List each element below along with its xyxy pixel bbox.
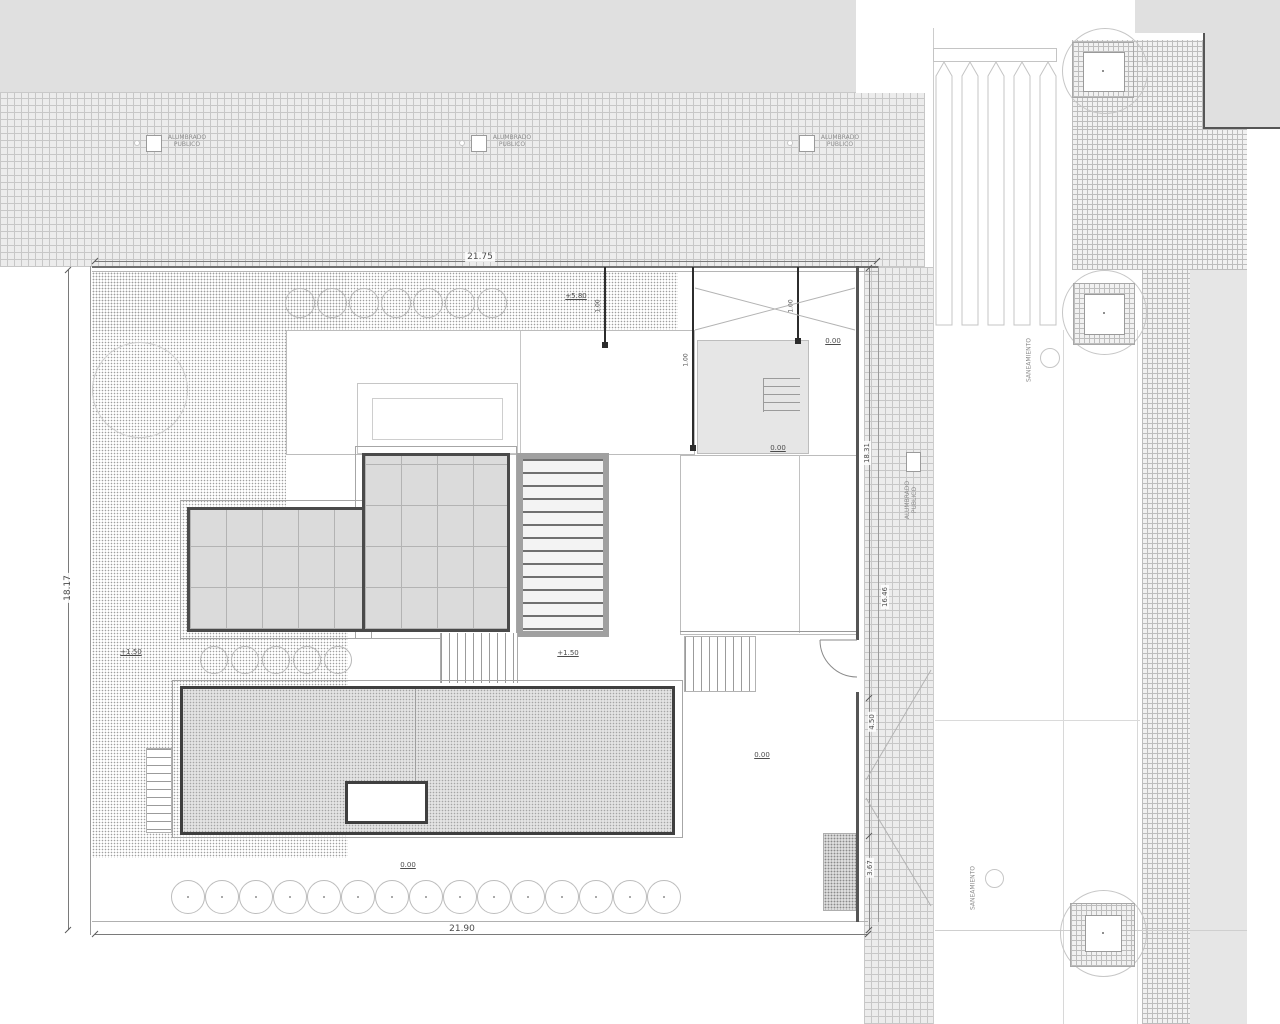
bush-circle xyxy=(231,646,259,674)
street-tree xyxy=(273,880,307,914)
level-patio-right-a: 0.00 xyxy=(825,337,841,345)
level-entry-court: 0.00 xyxy=(754,751,770,759)
dim-label-top: 21.75 xyxy=(465,252,495,262)
manhole-icon xyxy=(1040,348,1060,368)
lamp-label: ALUMBRADO PUBLICO xyxy=(817,135,863,149)
sidewalk-right xyxy=(864,267,933,1024)
street-edge-line xyxy=(933,28,934,1024)
level-patio-right-b: 0.00 xyxy=(770,444,786,452)
site-boundary-top-inner xyxy=(92,271,878,272)
lamp-box-icon xyxy=(471,135,487,152)
street-tree xyxy=(375,880,409,914)
tree-trunk-dot xyxy=(1103,312,1105,314)
site-boundary-top xyxy=(92,266,878,268)
sidewalk-top xyxy=(0,93,925,267)
right-patio-base-line xyxy=(680,631,857,632)
crosswalk-arrow-icon xyxy=(936,62,952,325)
manhole-icon xyxy=(985,869,1004,888)
bush-circle xyxy=(477,288,507,318)
lamp-label: ALUMBRADO PUBLICO xyxy=(164,135,210,149)
bush-circle xyxy=(262,646,290,674)
street-tree xyxy=(579,880,613,914)
building-block-top-right xyxy=(1203,33,1280,129)
site-wall-right xyxy=(856,266,859,640)
right-patio-divider xyxy=(799,455,800,633)
right-patio-block xyxy=(680,455,857,635)
dim-line-bottom xyxy=(95,934,868,935)
lamp-box-icon xyxy=(906,452,921,472)
street-joint-line xyxy=(935,720,1140,721)
lamp-label-vertical: ALUMBRADO PUBLICO xyxy=(905,477,919,523)
terrace-divider-line xyxy=(520,331,521,454)
street-tree xyxy=(409,880,443,914)
stair-mid-right xyxy=(684,636,756,692)
planter-pit xyxy=(1084,294,1125,335)
lamp-symbol-icon xyxy=(787,140,793,146)
lamp-box-icon xyxy=(146,135,162,152)
bush-circle xyxy=(381,288,411,318)
dim-label-right-upper: 18.31 xyxy=(863,441,871,465)
dim-label-left: 18.17 xyxy=(63,573,73,603)
stair-upper-right xyxy=(763,378,800,412)
site-plan-canvas: ALUMBRADO PUBLICO ALUMBRADO PUBLICO ALUM… xyxy=(0,0,1280,1024)
street-tree xyxy=(511,880,545,914)
level-terrace-left: +1.50 xyxy=(120,648,141,656)
terrace-step-outline xyxy=(372,398,503,440)
street-tree xyxy=(613,880,647,914)
crosswalk-arrow-icon xyxy=(988,62,1004,325)
dim-line-vertical xyxy=(604,267,606,345)
road-band-right xyxy=(1190,270,1247,1024)
bush-circle xyxy=(200,646,228,674)
level-roof: +5.80 xyxy=(565,292,586,300)
plaza-paving-band xyxy=(1142,270,1190,1024)
bush-circle xyxy=(413,288,443,318)
skylight-glass-right xyxy=(362,453,510,632)
street-tree xyxy=(205,880,239,914)
crosswalk-arrow-icon xyxy=(962,62,978,325)
bush-circle xyxy=(293,646,321,674)
tree-trunk-dot xyxy=(1102,70,1104,72)
pergola-louvers xyxy=(517,453,609,637)
dim-line-right xyxy=(869,268,870,930)
level-front-walk: 0.00 xyxy=(400,861,416,869)
street-tree xyxy=(545,880,579,914)
lamp-symbol-icon xyxy=(134,140,140,146)
crosswalk-arrows xyxy=(936,62,1056,325)
dim-label-right-bottom: 3.67 xyxy=(866,858,874,878)
dim-label-right-mid: 16.46 xyxy=(881,585,889,609)
plaza-paving-mid xyxy=(1072,127,1247,270)
lamp-box-icon xyxy=(799,135,815,152)
site-boundary-bottom xyxy=(92,921,868,922)
lamp-label: ALUMBRADO PUBLICO xyxy=(489,135,535,149)
dim-label-bottom: 21.90 xyxy=(447,924,477,934)
street-tree xyxy=(341,880,375,914)
stair-garden-left xyxy=(146,748,172,833)
dim-offset-label: 1.00 xyxy=(595,299,602,312)
crosswalk-arrow-icon xyxy=(1040,62,1056,325)
street-tree xyxy=(307,880,341,914)
bush-circle xyxy=(317,288,347,318)
lamp-symbol-icon xyxy=(459,140,465,146)
crosswalk-stop-bar xyxy=(933,48,1057,62)
skylight-glass-left xyxy=(187,507,365,632)
dim-offset-label: 1.00 xyxy=(683,353,690,366)
bush-circle xyxy=(445,288,475,318)
tree-trunk-dot xyxy=(1102,932,1104,934)
street-tree xyxy=(477,880,511,914)
street-tree xyxy=(239,880,273,914)
site-boundary-left xyxy=(90,266,91,935)
dim-line-vertical xyxy=(692,267,694,448)
bush-circle xyxy=(324,646,352,674)
site-wall-right xyxy=(856,692,859,922)
road-top xyxy=(0,0,856,93)
planter-pit xyxy=(1083,52,1125,92)
bush-circle xyxy=(349,288,379,318)
road-strip-top-right xyxy=(1135,0,1280,33)
dim-offset-label: 1.00 xyxy=(788,299,795,312)
street-tree xyxy=(443,880,477,914)
crosswalk-arrow-icon xyxy=(1014,62,1030,325)
stair-center xyxy=(440,633,518,683)
manhole-label: SANEAMIENTO xyxy=(970,866,977,910)
dim-label-right-lower: 4.50 xyxy=(868,712,876,732)
lower-roof-divider xyxy=(415,689,416,782)
street-tree xyxy=(647,880,681,914)
tree-canopy-circle-large xyxy=(92,342,188,438)
street-tree xyxy=(171,880,205,914)
site-wall-right-outer xyxy=(878,266,879,922)
bush-circle xyxy=(285,288,315,318)
dim-line-vertical xyxy=(797,267,799,341)
planter-site-corner xyxy=(823,833,857,911)
dim-line-tick xyxy=(795,338,801,344)
lower-roof-opening xyxy=(345,781,428,824)
manhole-label: SANEAMIENTO xyxy=(1026,338,1033,382)
dim-line-tick xyxy=(690,445,696,451)
level-terrace-center: +1.50 xyxy=(557,649,578,657)
door-swing xyxy=(820,640,857,677)
dim-line-tick xyxy=(602,342,608,348)
